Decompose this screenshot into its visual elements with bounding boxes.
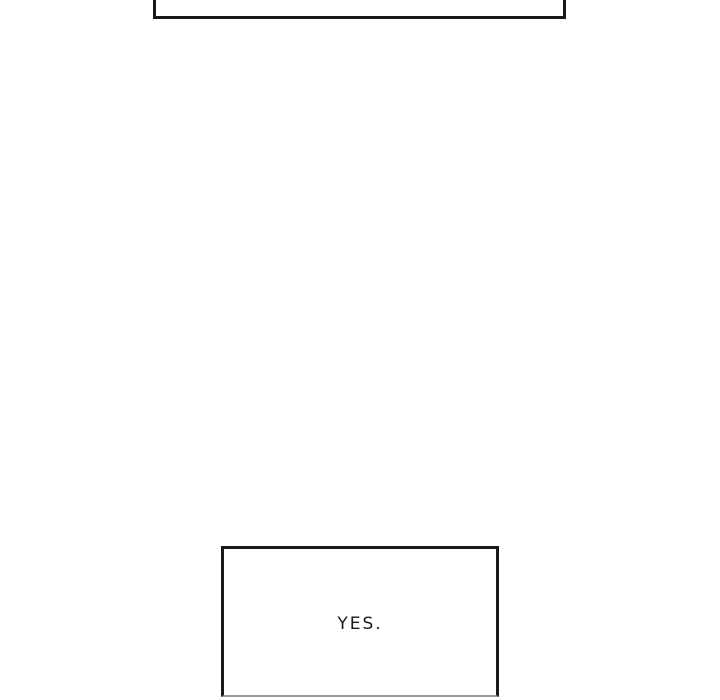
dialogue-text: YES.: [337, 616, 382, 633]
comic-panel-dialogue: YES.: [221, 546, 499, 697]
comic-page: YES.: [0, 0, 720, 700]
comic-panel-top-partial: [153, 0, 566, 19]
